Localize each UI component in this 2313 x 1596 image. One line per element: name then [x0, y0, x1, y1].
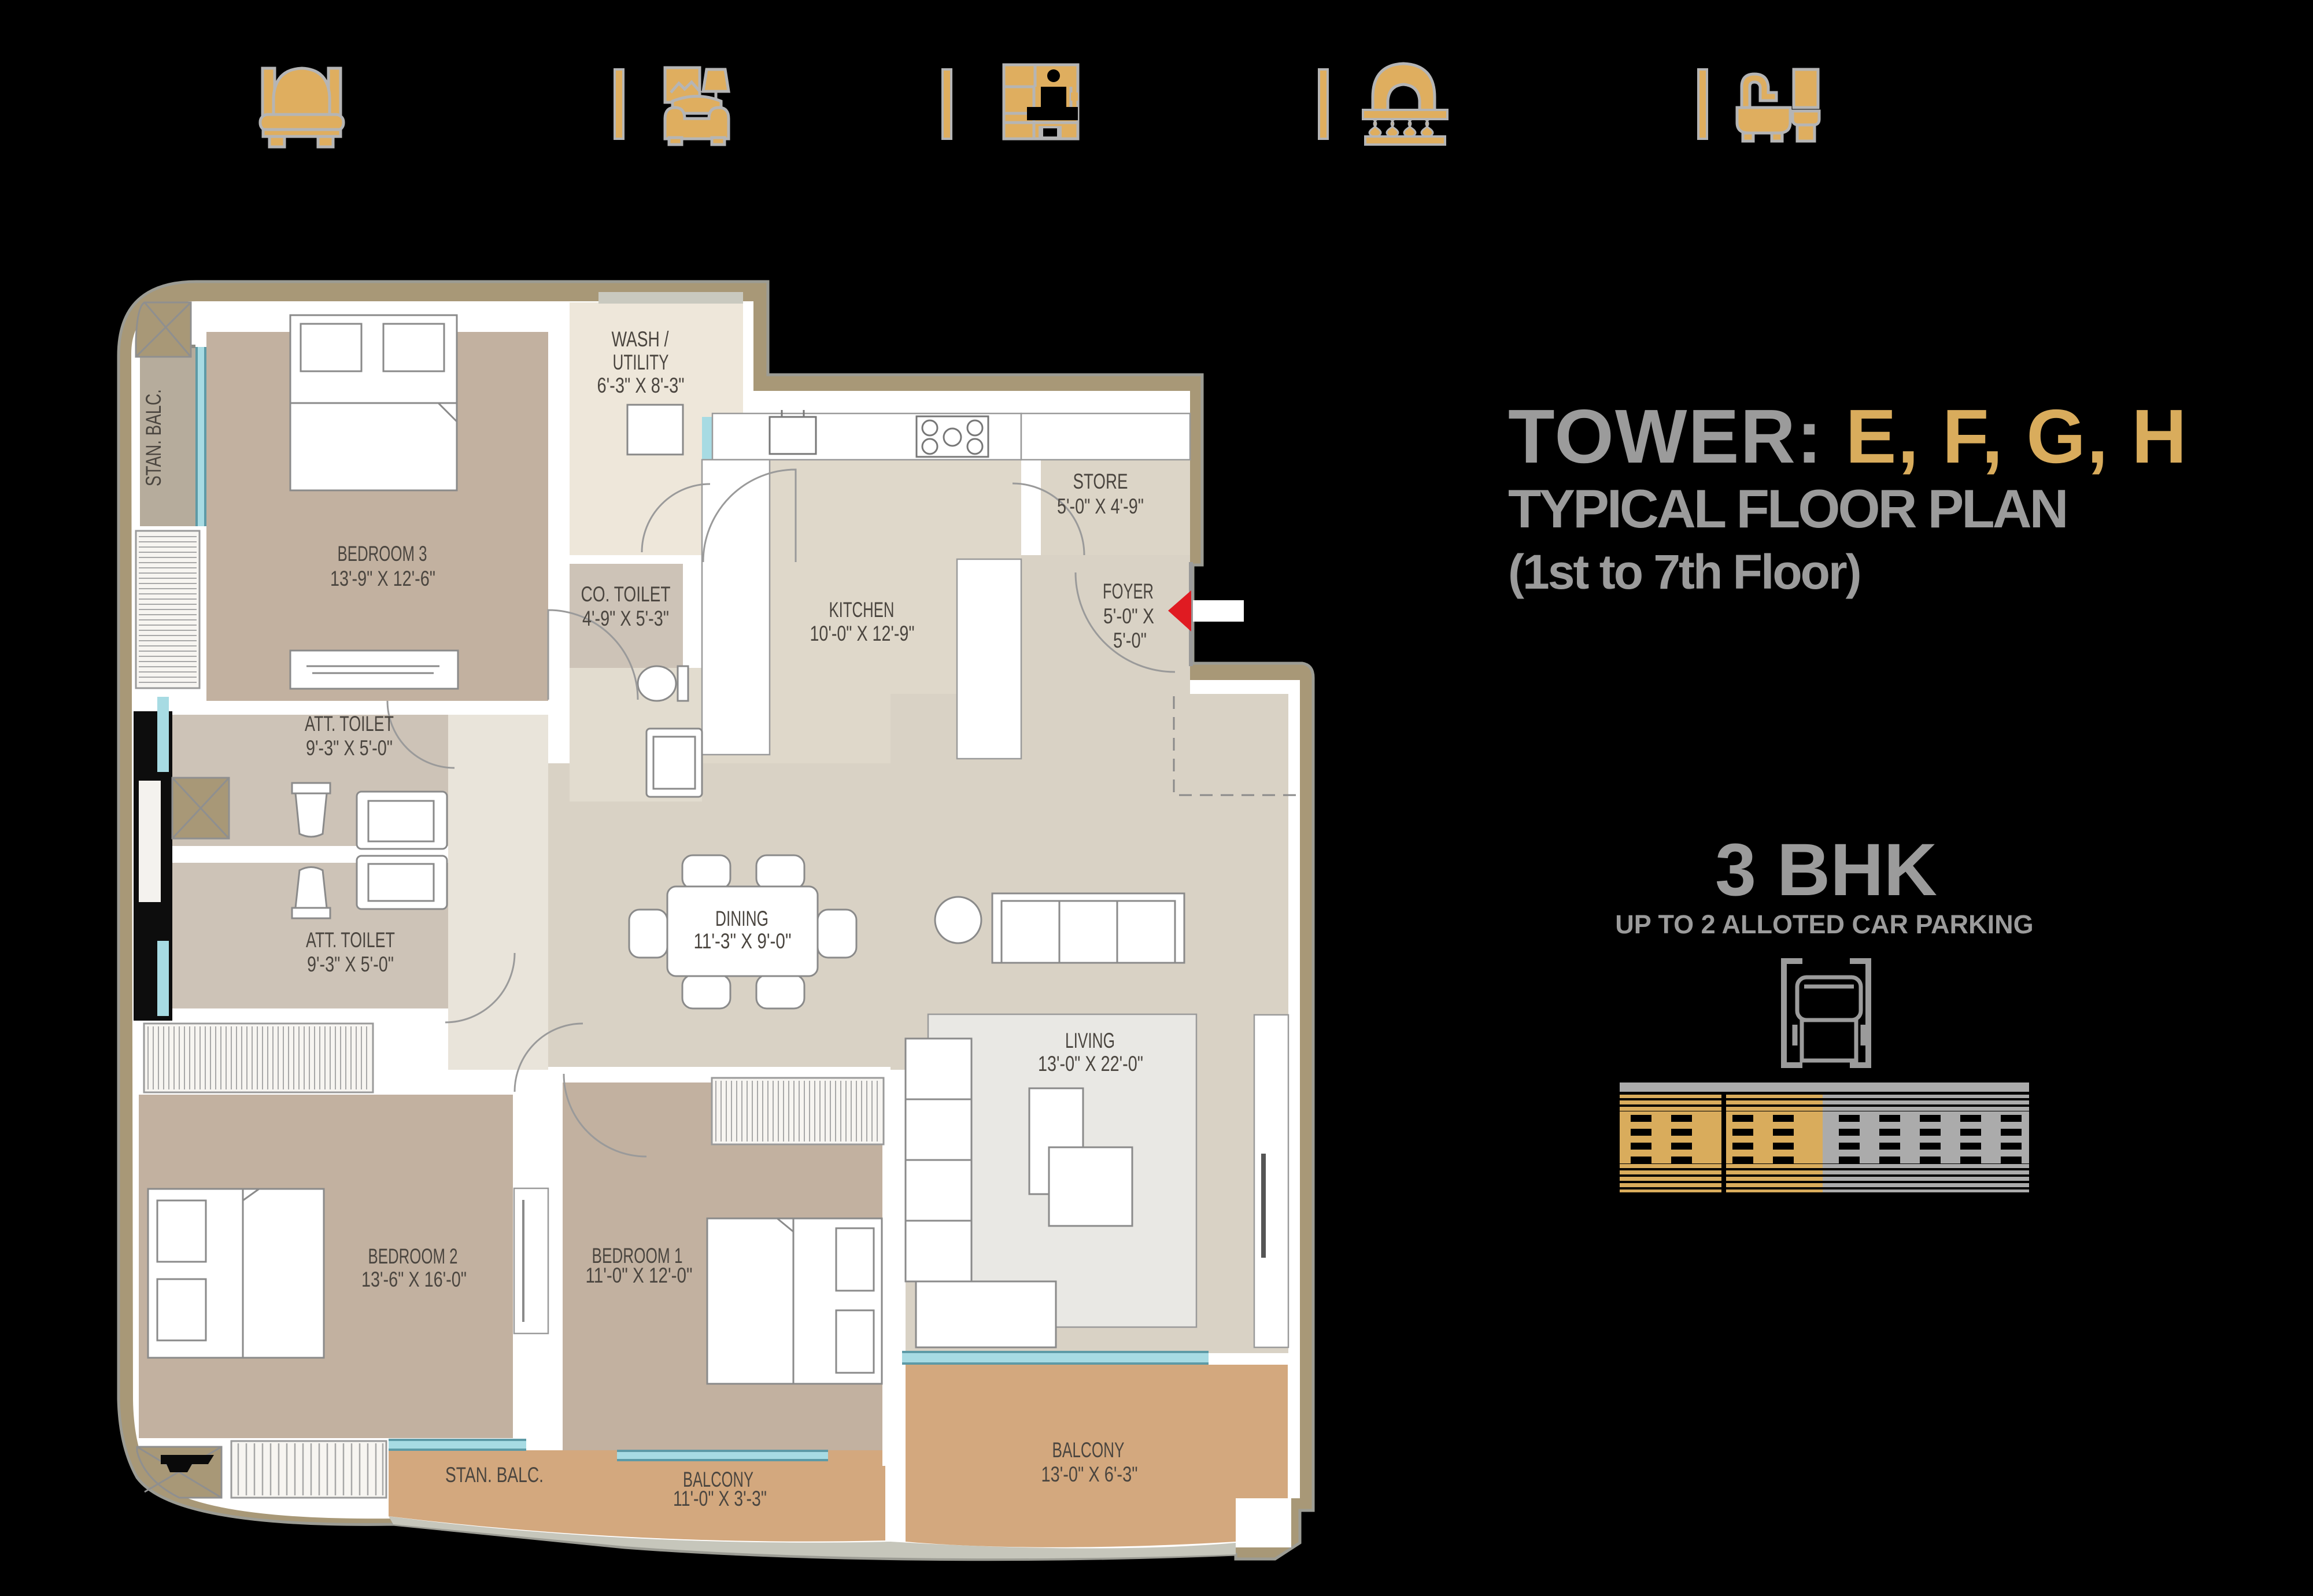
svg-text:STAN. BALC.: STAN. BALC.: [142, 389, 165, 486]
svg-text:(1st to 7th Floor): (1st to 7th Floor): [1508, 545, 1860, 599]
svg-text:13'-0" X 6'-3": 13'-0" X 6'-3": [1041, 1462, 1138, 1486]
svg-text:9'-3" X 5'-0": 9'-3" X 5'-0": [306, 736, 393, 760]
svg-text:CO. TOILET: CO. TOILET: [581, 582, 671, 606]
svg-text:BALCONY: BALCONY: [1052, 1438, 1125, 1462]
svg-text:9'-3" X 5'-0": 9'-3" X 5'-0": [307, 952, 394, 976]
svg-text:ATT. TOILET: ATT. TOILET: [306, 928, 395, 952]
svg-text:5'-0" X: 5'-0" X: [1103, 604, 1154, 628]
svg-text:11'-0" X 12'-0": 11'-0" X 12'-0": [586, 1263, 693, 1287]
svg-text:LIVING: LIVING: [1065, 1029, 1115, 1052]
svg-text:TOWER: E, F, G, H: TOWER: E, F, G, H: [1508, 394, 2188, 479]
svg-text:6'-3" X 8'-3": 6'-3" X 8'-3": [597, 374, 685, 397]
svg-text:WASH /: WASH /: [612, 327, 670, 351]
svg-text:UTILITY: UTILITY: [613, 350, 669, 374]
svg-text:ATT. TOILET: ATT. TOILET: [305, 712, 394, 736]
svg-text:STAN. BALC.: STAN. BALC.: [445, 1463, 544, 1487]
svg-text:STORE: STORE: [1073, 470, 1128, 493]
svg-text:13'-0" X 22'-0": 13'-0" X 22'-0": [1038, 1052, 1143, 1076]
svg-text:3 BHK: 3 BHK: [1715, 829, 1937, 911]
svg-text:13'-6" X 16'-0": 13'-6" X 16'-0": [361, 1268, 467, 1291]
svg-text:13'-9" X 12'-6": 13'-9" X 12'-6": [330, 567, 435, 590]
svg-text:10'-0" X 12'-9": 10'-0" X 12'-9": [810, 622, 915, 645]
svg-text:UP TO 2 ALLOTED CAR PARKING: UP TO 2 ALLOTED CAR PARKING: [1615, 910, 2033, 939]
svg-text:BEDROOM 2: BEDROOM 2: [368, 1244, 458, 1268]
svg-text:5'-0" X 4'-9": 5'-0" X 4'-9": [1057, 494, 1144, 518]
svg-text:TYPICAL FLOOR PLAN: TYPICAL FLOOR PLAN: [1508, 478, 2067, 539]
svg-text:4'-9" X 5'-3": 4'-9" X 5'-3": [582, 607, 669, 630]
svg-text:FOYER: FOYER: [1103, 579, 1154, 603]
svg-text:BEDROOM 3: BEDROOM 3: [338, 542, 427, 566]
svg-text:11'-3" X 9'-0": 11'-3" X 9'-0": [694, 929, 792, 953]
svg-text:5'-0": 5'-0": [1113, 629, 1147, 652]
svg-text:KITCHEN: KITCHEN: [829, 598, 895, 622]
svg-text:11'-0" X 3'-3": 11'-0" X 3'-3": [673, 1487, 767, 1510]
svg-text:DINING: DINING: [715, 907, 768, 930]
